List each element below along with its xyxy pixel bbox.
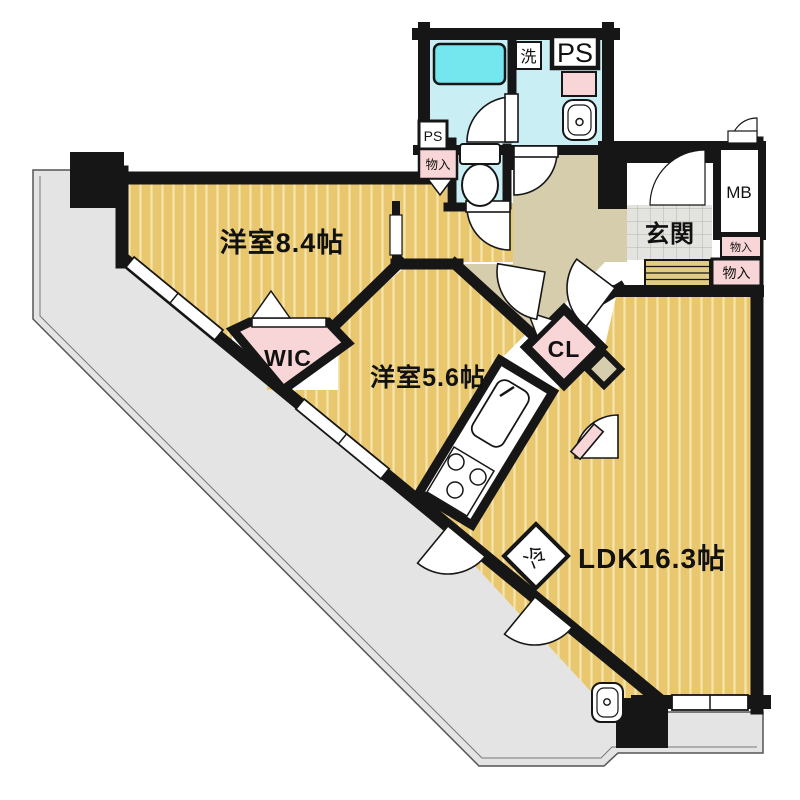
washbasin (563, 100, 596, 140)
bathtub (434, 44, 505, 84)
label-cl: CL (548, 336, 581, 362)
svg-text:物入: 物入 (723, 265, 751, 281)
meter-box: MB (713, 131, 766, 240)
svg-text:物入: 物入 (730, 240, 752, 254)
label-ldk: LDK16.3帖 (578, 543, 726, 574)
pillar-topleft (70, 152, 124, 208)
label-bedroom2: 洋室5.6帖 (370, 363, 486, 392)
svg-text:物入: 物入 (425, 158, 451, 172)
svg-text:PS: PS (557, 38, 593, 68)
svg-text:PS: PS (424, 128, 443, 144)
counter-box (562, 72, 596, 96)
floor-plan: { "plan": { "type": "apartment-floor-pla… (0, 0, 800, 800)
svg-text:MB: MB (726, 183, 752, 202)
label-bedroom1: 洋室8.4帖 (220, 227, 345, 258)
bedroom1-sliding-door (390, 215, 402, 255)
toilet (460, 144, 500, 206)
balcony-sink (592, 683, 623, 722)
entrance-step (645, 260, 710, 286)
label-wic: WIC (264, 345, 312, 371)
washroom-door-leaf (514, 146, 558, 157)
floor-plan-svg: 冷 (0, 0, 800, 800)
svg-text:洗: 洗 (520, 48, 536, 66)
label-entrance: 玄関 (645, 220, 695, 248)
bathroom-door-leaf (505, 94, 518, 142)
